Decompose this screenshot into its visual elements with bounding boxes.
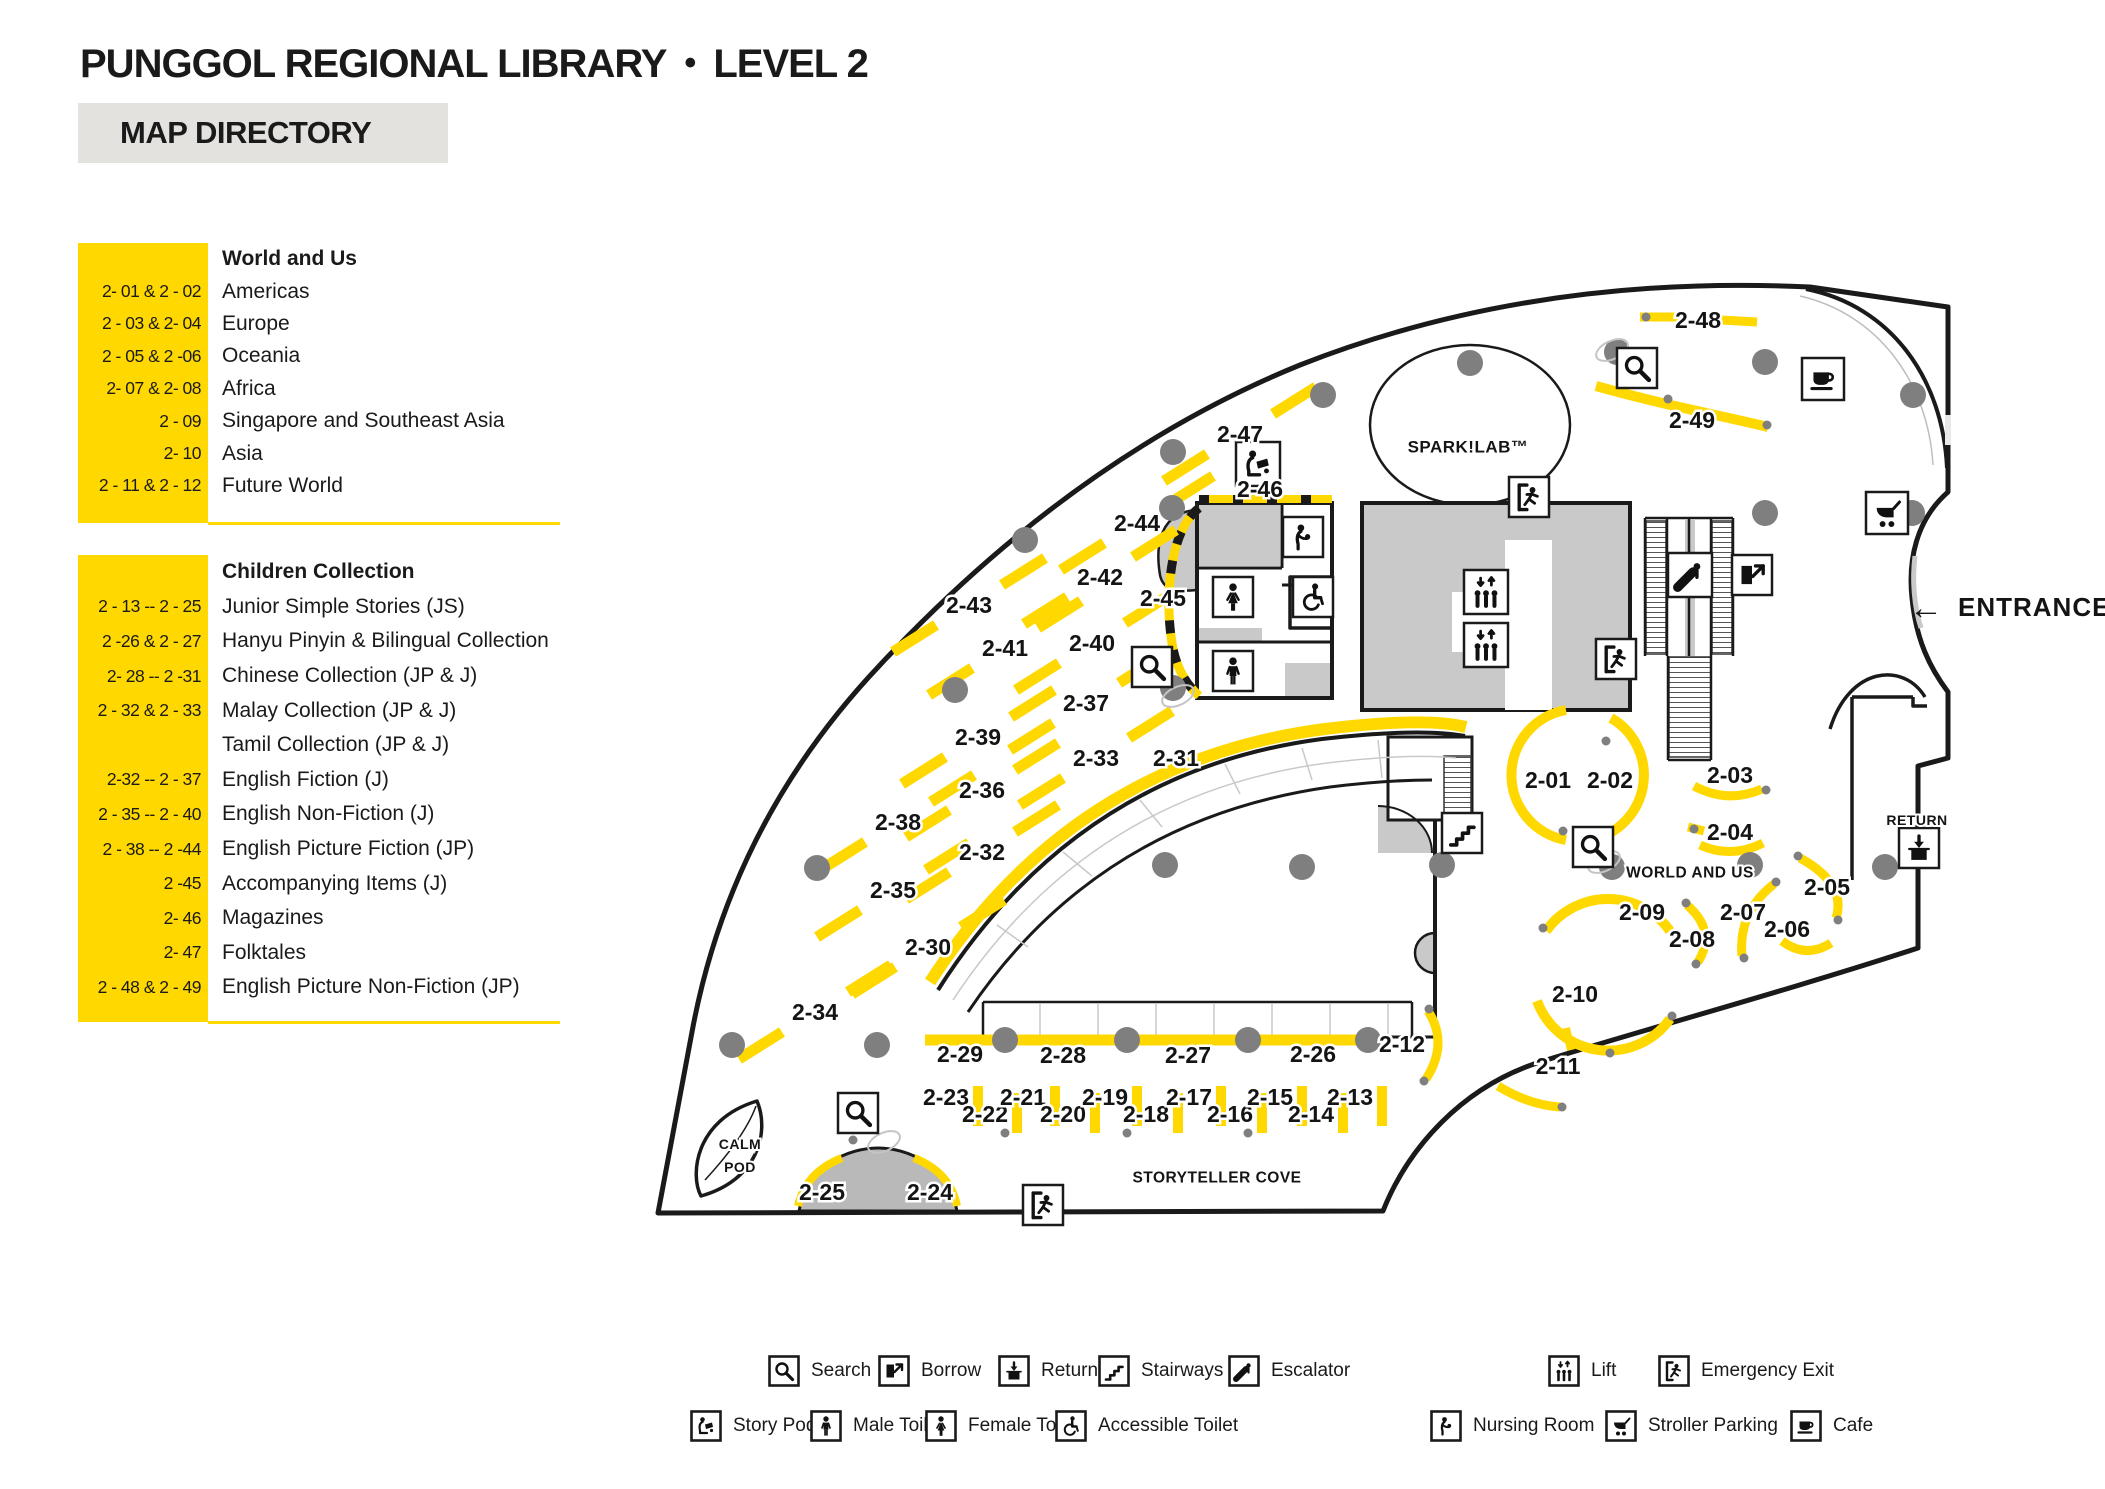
legend-item-nursing-room: Nursing Room — [1430, 1410, 1594, 1442]
small-dot — [1602, 737, 1611, 746]
zone-label: 2-24 — [907, 1179, 953, 1205]
area-label: STORYTELLER COVE — [1132, 1170, 1301, 1187]
legend-item-story-pods: Story Pods — [690, 1410, 826, 1442]
small-dot — [1740, 954, 1749, 963]
shelf-bar — [1376, 1085, 1388, 1127]
zone-label: 2-27 — [1165, 1042, 1211, 1068]
zone-label: 2-08 — [1669, 926, 1715, 952]
small-dot — [1642, 313, 1651, 322]
small-dot — [1244, 1129, 1253, 1138]
small-dot — [1559, 827, 1568, 836]
stairs-hatch — [1712, 521, 1732, 654]
zone-label: 2-36 — [959, 777, 1005, 803]
search-icon — [768, 1355, 800, 1387]
zone-label: 2-01 — [1525, 767, 1571, 793]
area-label: POD — [724, 1159, 756, 1175]
small-dot — [1558, 1103, 1567, 1112]
legend-item-emergency-exit: Emergency Exit — [1658, 1355, 1834, 1387]
zone-label: 2-35 — [870, 877, 916, 903]
pillar-dot — [1152, 852, 1178, 878]
zone-label: 2-19 — [1082, 1084, 1128, 1110]
entrance-arrow: ← — [1909, 589, 1943, 627]
cafe-icon — [1790, 1410, 1822, 1442]
legend-label: Accessible Toilet — [1098, 1415, 1238, 1437]
zone-label: 2-04 — [1707, 819, 1753, 845]
legend-item-cafe: Cafe — [1790, 1410, 1873, 1442]
emergency-exit-icon — [1596, 639, 1636, 679]
emergency-exit-icon — [1658, 1355, 1690, 1387]
pillar-dot — [1114, 1027, 1140, 1053]
zone-label: 2-37 — [1063, 690, 1109, 716]
legend-label: Stairways — [1141, 1360, 1223, 1382]
zone-label: 2-18 — [1123, 1101, 1169, 1127]
male-toilet-icon — [810, 1410, 842, 1442]
pillar-dot — [1429, 852, 1455, 878]
zone-label: 2-48 — [1675, 307, 1721, 333]
zone-label: 2-42 — [1077, 564, 1123, 590]
pillar-dot — [992, 1027, 1018, 1053]
room-fill — [1199, 628, 1262, 641]
floor-plan-map: 2-442-472-432-412-422-402-372-392-362-33… — [0, 0, 2105, 1489]
zone-label: 2-32 — [959, 839, 1005, 865]
shelf-mark — [1721, 320, 1757, 322]
small-dot — [1772, 878, 1781, 887]
zone-label: 2-07 — [1720, 899, 1766, 925]
zone-label: 2-31 — [1153, 745, 1199, 771]
area-label: CALM — [719, 1136, 761, 1152]
search-icon — [1573, 827, 1613, 867]
zone-label: 2-46 — [1237, 476, 1283, 502]
legend-label: Nursing Room — [1473, 1415, 1594, 1437]
legend-label: Stroller Parking — [1648, 1415, 1778, 1437]
small-dot — [1692, 960, 1701, 969]
legend-label: Search — [811, 1360, 871, 1382]
area-label: SPARK!LAB™ — [1408, 438, 1529, 457]
return-icon — [998, 1355, 1030, 1387]
shelf-mark — [1566, 1028, 1571, 1050]
small-dot — [1682, 899, 1691, 908]
small-dot — [1123, 1129, 1132, 1138]
legend-item-male-toilet: Male Toilet — [810, 1410, 943, 1442]
legend-item-accessible-toilet: Accessible Toilet — [1055, 1410, 1238, 1442]
zone-label: 2-02 — [1587, 767, 1633, 793]
zone-label: 2-34 — [792, 999, 838, 1025]
borrow-icon — [878, 1355, 910, 1387]
lift-icon — [1548, 1355, 1580, 1387]
zone-label: 2-28 — [1040, 1042, 1086, 1068]
pillar-dot — [864, 1032, 890, 1058]
small-dot — [1420, 1077, 1429, 1086]
legend-label: Escalator — [1271, 1360, 1350, 1382]
zone-label: 2-17 — [1166, 1084, 1212, 1110]
return-icon — [1899, 828, 1939, 868]
stairways-icon — [1442, 813, 1482, 853]
zone-label: 2-47 — [1217, 421, 1263, 447]
zone-label: 2-29 — [937, 1041, 983, 1067]
zone-label: 2-11 — [1536, 1053, 1581, 1079]
zone-label: 2-25 — [799, 1179, 845, 1205]
small-dot — [1539, 924, 1548, 933]
pillar-dot — [1355, 1027, 1381, 1053]
escalator-icon — [1228, 1355, 1260, 1387]
accessible-toilet-icon — [1055, 1410, 1087, 1442]
entrance-label: ENTRANCE — [1958, 592, 2105, 622]
borrow-icon — [1732, 555, 1772, 595]
legend-item-lift: Lift — [1548, 1355, 1616, 1387]
search-icon — [1132, 647, 1172, 687]
area-label: WORLD AND US — [1626, 865, 1754, 882]
escalator-icon — [1668, 553, 1712, 597]
zone-label: 2-26 — [1290, 1041, 1336, 1067]
zone-label: 2-39 — [955, 724, 1001, 750]
pillar-dot — [1012, 527, 1038, 553]
pillar-dot — [1457, 350, 1483, 376]
small-dot — [1762, 786, 1771, 795]
zone-label: 2-30 — [905, 934, 951, 960]
zone-label: 2-40 — [1069, 630, 1115, 656]
zone-label: 2-05 — [1804, 874, 1850, 900]
zone-label: 2-38 — [875, 809, 921, 835]
stairs-hatch — [1669, 657, 1711, 757]
room-cutout — [1505, 540, 1552, 710]
search-icon — [1617, 348, 1657, 388]
pillar-dot — [1159, 495, 1185, 521]
pillar-dot — [1752, 349, 1778, 375]
small-dot — [1794, 852, 1803, 861]
small-dot — [849, 1136, 858, 1145]
zone-label: 2-09 — [1619, 899, 1665, 925]
zone-label: 2-15 — [1247, 1084, 1293, 1110]
small-dot — [1668, 1012, 1677, 1021]
small-dot — [1690, 825, 1699, 834]
small-dot — [1606, 1049, 1615, 1058]
small-dot — [1664, 395, 1673, 404]
legend-label: Cafe — [1833, 1415, 1873, 1437]
legend-label: Emergency Exit — [1701, 1360, 1834, 1382]
pillar-dot — [1310, 382, 1336, 408]
pillar-dot — [942, 677, 968, 703]
shelf-mark — [1498, 1086, 1560, 1107]
story-pods-icon — [690, 1410, 722, 1442]
legend-item-search: Search — [768, 1355, 871, 1387]
small-dot — [1001, 1129, 1010, 1138]
legend-item-stairways: Stairways — [1098, 1355, 1223, 1387]
stairways-icon — [1098, 1355, 1130, 1387]
emergency-exit-icon — [1509, 477, 1549, 517]
zone-label: 2-06 — [1764, 916, 1810, 942]
nursing-room-icon — [1283, 517, 1323, 557]
zone-label: 2-45 — [1140, 585, 1186, 611]
stairs-hatch — [1646, 521, 1666, 654]
search-icon — [838, 1093, 878, 1133]
male-toilet-icon — [1213, 651, 1253, 691]
pillar-dot — [1752, 500, 1778, 526]
room-fill — [1285, 663, 1330, 696]
pillar-dot — [719, 1032, 745, 1058]
zone-label: 2-13 — [1327, 1084, 1373, 1110]
legend-item-stroller-parking: Stroller Parking — [1605, 1410, 1778, 1442]
legend-item-escalator: Escalator — [1228, 1355, 1350, 1387]
zone-label: 2-41 — [982, 635, 1028, 661]
nursing-room-icon — [1430, 1410, 1462, 1442]
emergency-exit-icon — [1023, 1185, 1063, 1225]
area-label: RETURN — [1886, 812, 1947, 828]
cafe-icon — [1802, 358, 1844, 400]
lift-icon — [1464, 623, 1508, 667]
female-toilet-icon — [1213, 577, 1253, 617]
stroller-parking-icon — [1605, 1410, 1637, 1442]
accessible-toilet-icon — [1293, 577, 1333, 617]
zone-label: 2-44 — [1114, 510, 1160, 536]
stairs-hatch — [1444, 756, 1471, 818]
zone-label: 2-33 — [1073, 745, 1119, 771]
pillar-dot — [1872, 854, 1898, 880]
room-fill — [1199, 505, 1280, 566]
legend-label: Lift — [1591, 1360, 1616, 1382]
small-dot — [1834, 916, 1843, 925]
female-toilet-icon — [925, 1410, 957, 1442]
legend-label: Return — [1041, 1360, 1098, 1382]
pillar-dot — [1235, 1027, 1261, 1053]
zone-label: 2-12 — [1379, 1031, 1425, 1057]
lift-icon — [1464, 570, 1508, 614]
zone-label: 2-10 — [1552, 981, 1598, 1007]
pillar-dot — [1900, 382, 1926, 408]
pillar-dot — [1160, 439, 1186, 465]
legend-label: Borrow — [921, 1360, 981, 1382]
legend-item-borrow: Borrow — [878, 1355, 981, 1387]
zone-label: 2-03 — [1707, 762, 1753, 788]
pillar-dot — [804, 855, 830, 881]
small-dot — [1763, 421, 1772, 430]
zone-label: 2-43 — [946, 592, 992, 618]
zone-label: 2-20 — [1040, 1101, 1086, 1127]
legend-item-return: Return — [998, 1355, 1098, 1387]
pillar-dot — [1289, 854, 1315, 880]
small-dot — [1425, 1005, 1434, 1014]
stroller-parking-icon — [1866, 492, 1908, 534]
zone-label: 2-49 — [1669, 407, 1715, 433]
